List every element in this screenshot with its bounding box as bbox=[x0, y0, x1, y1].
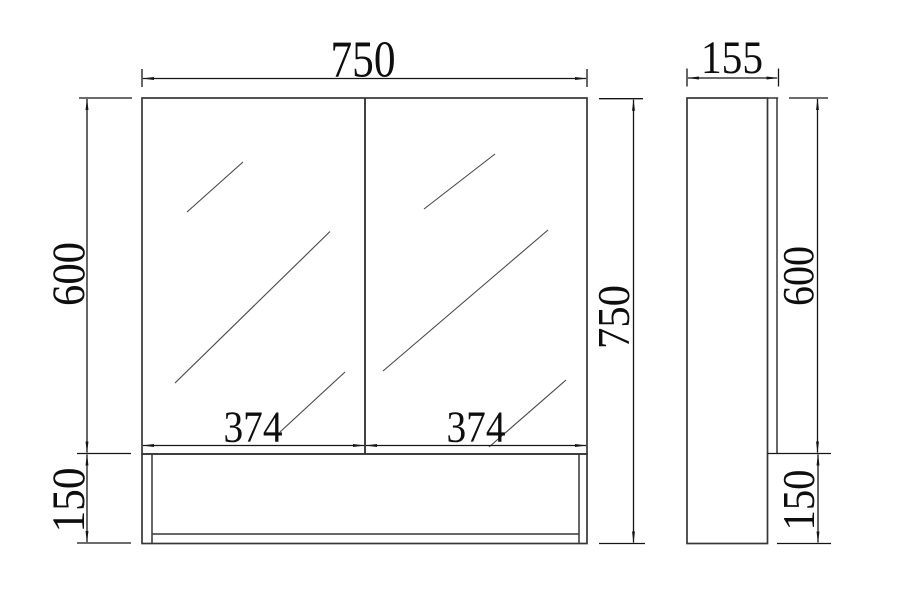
svg-text:155: 155 bbox=[701, 33, 763, 84]
svg-text:374: 374 bbox=[447, 403, 506, 452]
svg-text:750: 750 bbox=[588, 285, 639, 349]
svg-text:600: 600 bbox=[43, 242, 95, 306]
svg-text:600: 600 bbox=[774, 246, 823, 306]
svg-text:150: 150 bbox=[43, 468, 95, 533]
svg-text:750: 750 bbox=[331, 32, 396, 89]
svg-text:150: 150 bbox=[773, 470, 824, 531]
svg-text:374: 374 bbox=[224, 403, 283, 452]
